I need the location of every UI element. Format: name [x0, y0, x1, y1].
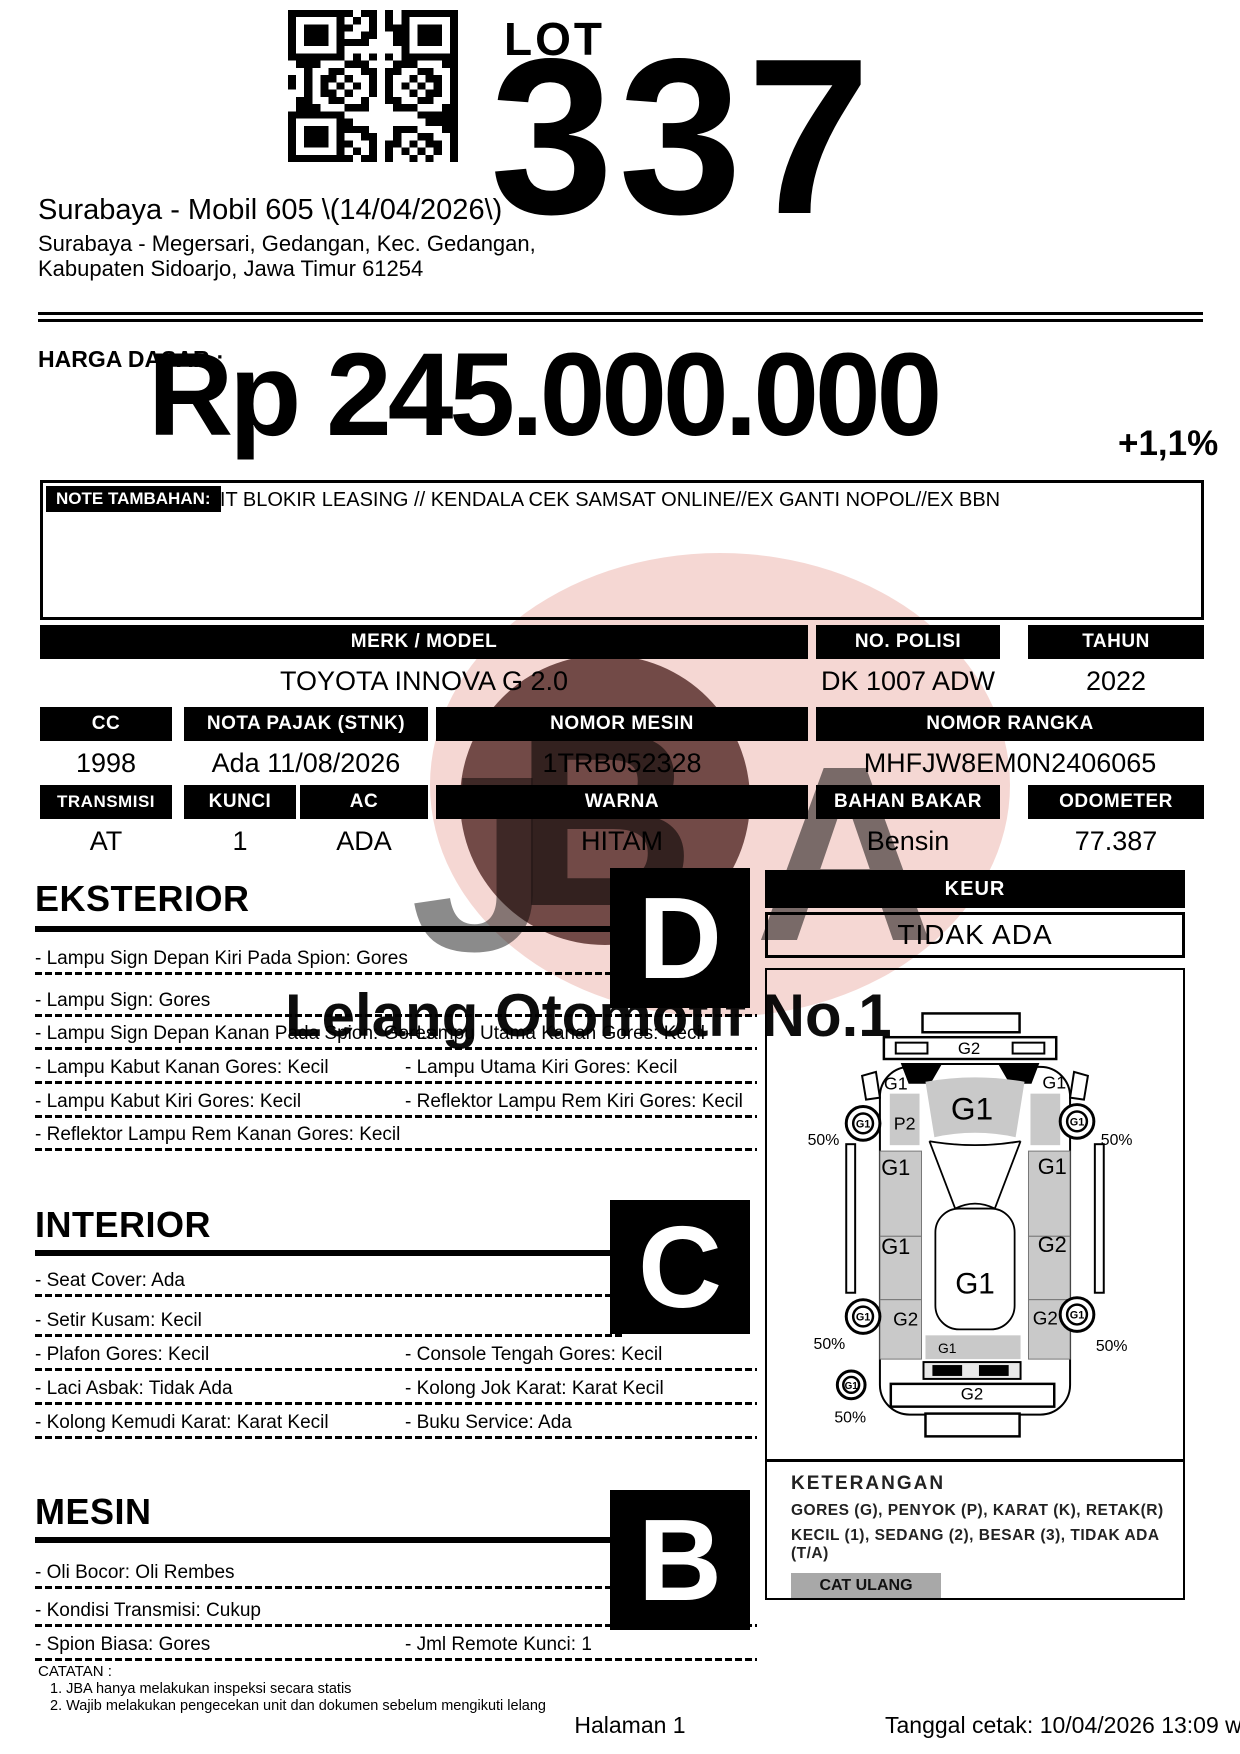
catatan-item: 1. JBA hanya melakukan inspeksi secara s… — [50, 1681, 351, 1697]
inspection-item: - Seat Cover: Ada — [35, 1268, 757, 1297]
print-timestamp: Tanggal cetak: 10/04/2026 13:09 wib — [885, 1712, 1240, 1739]
svg-text:G1: G1 — [1070, 1310, 1085, 1322]
grade-eksterior: D — [610, 868, 750, 1008]
label-hood: G1 — [951, 1090, 993, 1126]
keterangan-line2: KECIL (1), SEDANG (2), BESAR (3), TIDAK … — [791, 1527, 1171, 1563]
right-fender-panel — [1030, 1094, 1060, 1146]
wheel-front-right: G1 — [1060, 1105, 1094, 1139]
keterangan-legend: KETERANGAN GORES (G), PENYOK (P), KARAT … — [791, 1473, 1171, 1598]
label-left-mirror: G1 — [884, 1074, 908, 1094]
inspection-item: - Reflektor Lampu Rem Kanan Gores: Kecil — [35, 1122, 757, 1151]
section-title-interior: INTERIOR — [35, 1204, 211, 1246]
divider-rule — [38, 312, 1203, 315]
header-bahan-bakar: BAHAN BAKAR — [816, 785, 1000, 819]
keterangan-title: KETERANGAN — [791, 1473, 1171, 1495]
header-nota-pajak: NOTA PAJAK (STNK) — [184, 707, 428, 741]
catatan-item: 2. Wajib melakukan pengecekan unit dan d… — [50, 1698, 546, 1714]
header-kunci: KUNCI — [184, 785, 296, 819]
grade-letter: D — [638, 871, 722, 1005]
header-nomor-mesin: NOMOR MESIN — [436, 707, 808, 741]
header-odometer: ODOMETER — [1028, 785, 1204, 819]
label-rear-bumper: G2 — [961, 1385, 983, 1404]
value-nota-pajak: Ada 11/08/2026 — [184, 744, 428, 782]
keur-value: TIDAK ADA — [765, 912, 1185, 958]
inspection-item: - Plafon Gores: Kecil - Console Tengah G… — [35, 1342, 757, 1371]
wheel-rear-left: G1 — [846, 1300, 880, 1334]
inspection-item: - Lampu Sign Depan Kiri Pada Spion: Gore… — [35, 946, 757, 975]
base-price-value: Rp 245.000.000 — [148, 336, 938, 454]
header-cc: CC — [40, 707, 172, 741]
header-nomor-rangka: NOMOR RANGKA — [816, 707, 1204, 741]
inspection-item: - Lampu Kabut Kanan Gores: Kecil - Lampu… — [35, 1055, 757, 1084]
label-right-front-door: G1 — [1038, 1154, 1067, 1179]
damage-diagram-panel: G1 G1 G1 G1 G1 G2 G1 G1 G1 P2 — [765, 968, 1185, 1600]
spare-wheel: G1 — [837, 1371, 865, 1399]
panel-divider — [767, 1459, 1183, 1462]
header-merk-model: MERK / MODEL — [40, 625, 808, 659]
svg-text:G1: G1 — [845, 1381, 859, 1392]
wheel-rear-right: G1 — [1060, 1298, 1094, 1332]
price-increment: +1,1% — [1118, 424, 1218, 464]
svg-text:G1: G1 — [856, 1118, 871, 1130]
label-right-quarter: G2 — [1033, 1307, 1058, 1328]
front-plate — [923, 1013, 1020, 1032]
left-mirror — [862, 1072, 880, 1100]
label-left-front-door: G1 — [881, 1155, 910, 1180]
section-rule — [35, 1537, 626, 1543]
label-left-quarter: G2 — [893, 1308, 918, 1329]
inspection-item: - Spion Biasa: Gores - Jml Remote Kunci:… — [35, 1632, 757, 1661]
right-side-step — [1095, 1144, 1104, 1293]
label-right-rear-door: G2 — [1038, 1232, 1067, 1257]
lot-number: 337 — [490, 26, 875, 248]
label-left-rear-door: G1 — [881, 1234, 910, 1259]
qr-code — [288, 10, 458, 162]
inspection-item: - Setir Kusam: Kecil — [35, 1308, 757, 1337]
auction-address-line2: Kabupaten Sidoarjo, Jawa Timur 61254 — [38, 256, 423, 282]
value-cc: 1998 — [40, 744, 172, 782]
note-label: NOTE TAMBAHAN: — [46, 486, 221, 512]
label-pct-rear-right: 50% — [1096, 1338, 1128, 1355]
label-pct-front-left: 50% — [808, 1132, 840, 1149]
label-pct-spare: 50% — [834, 1410, 866, 1427]
label-rear-window: G1 — [938, 1340, 957, 1356]
value-merk-model: TOYOTA INNOVA G 2.0 — [40, 662, 808, 700]
value-tahun: 2022 — [1028, 662, 1204, 700]
auction-lot-sheet: J B A Lelang Otomotif No.1 LOT 337 Surab… — [0, 0, 1240, 1754]
svg-text:G1: G1 — [856, 1311, 871, 1323]
value-nomor-rangka: MHFJW8EM0N2406065 — [816, 744, 1204, 782]
value-kunci: 1 — [184, 822, 296, 860]
page-number: Halaman 1 — [530, 1712, 730, 1739]
inspection-item: - Laci Asbak: Tidak Ada - Kolong Jok Kar… — [35, 1376, 757, 1405]
cat-ulang-badge: CAT ULANG — [791, 1573, 941, 1598]
value-no-polisi: DK 1007 ADW — [816, 662, 1000, 700]
section-title-eksterior: EKSTERIOR — [35, 878, 250, 920]
header-ac: AC — [300, 785, 428, 819]
header-warna: WARNA — [436, 785, 808, 819]
note-box: NOTE TAMBAHAN: UNIT BLOKIR LEASING // KE… — [40, 480, 1204, 620]
label-front-bumper: G2 — [958, 1039, 980, 1058]
inspection-item: - Kondisi Transmisi: Cukup — [35, 1598, 757, 1627]
inspection-item: - Lampu Sign: Gores — [35, 988, 757, 1017]
keur-header: KEUR — [765, 870, 1185, 908]
value-bahan-bakar: Bensin — [816, 822, 1000, 860]
rear-plate — [925, 1414, 1019, 1437]
label-roof: G1 — [955, 1268, 995, 1301]
section-rule — [35, 1250, 626, 1256]
inspection-item: - Kolong Kemudi Karat: Karat Kecil - Buk… — [35, 1410, 757, 1439]
value-warna: HITAM — [436, 822, 808, 860]
label-left-fender: P2 — [894, 1113, 916, 1133]
auction-title: Surabaya - Mobil 605 \(14/04/2026\) — [38, 194, 502, 227]
value-nomor-mesin: 1TRB052328 — [436, 744, 808, 782]
left-side-step — [846, 1144, 855, 1293]
car-damage-diagram: G1 G1 G1 G1 G1 G2 G1 G1 G1 P2 — [767, 970, 1183, 1459]
value-transmisi: AT — [40, 822, 172, 860]
label-pct-front-right: 50% — [1101, 1132, 1133, 1149]
catatan-title: CATATAN : — [38, 1663, 112, 1680]
value-odometer: 77.387 — [1028, 822, 1204, 860]
header-transmisi: TRANSMISI — [40, 785, 172, 819]
inspection-item: - Lampu Sign Depan Kanan Pada Spion: Gor… — [35, 1021, 757, 1050]
right-mirror — [1070, 1072, 1088, 1100]
inspection-item: - Oli Bocor: Oli Rembes — [35, 1560, 757, 1589]
header-tahun: TAHUN — [1028, 625, 1204, 659]
section-rule — [35, 926, 626, 932]
inspection-item: - Lampu Kabut Kiri Gores: Kecil - Reflek… — [35, 1089, 757, 1118]
value-ac: ADA — [300, 822, 428, 860]
header-no-polisi: NO. POLISI — [816, 625, 1000, 659]
note-text: UNIT BLOKIR LEASING // KENDALA CEK SAMSA… — [191, 489, 1000, 512]
keterangan-line1: GORES (G), PENYOK (P), KARAT (K), RETAK(… — [791, 1502, 1171, 1520]
svg-text:G1: G1 — [1070, 1116, 1085, 1128]
divider-rule — [38, 319, 1203, 322]
auction-address-line1: Surabaya - Megersari, Gedangan, Kec. Ged… — [38, 231, 536, 257]
section-title-mesin: MESIN — [35, 1491, 152, 1533]
label-pct-rear-left: 50% — [814, 1336, 846, 1353]
wheel-front-left: G1 — [846, 1107, 880, 1141]
label-right-mirror: G1 — [1042, 1073, 1066, 1093]
